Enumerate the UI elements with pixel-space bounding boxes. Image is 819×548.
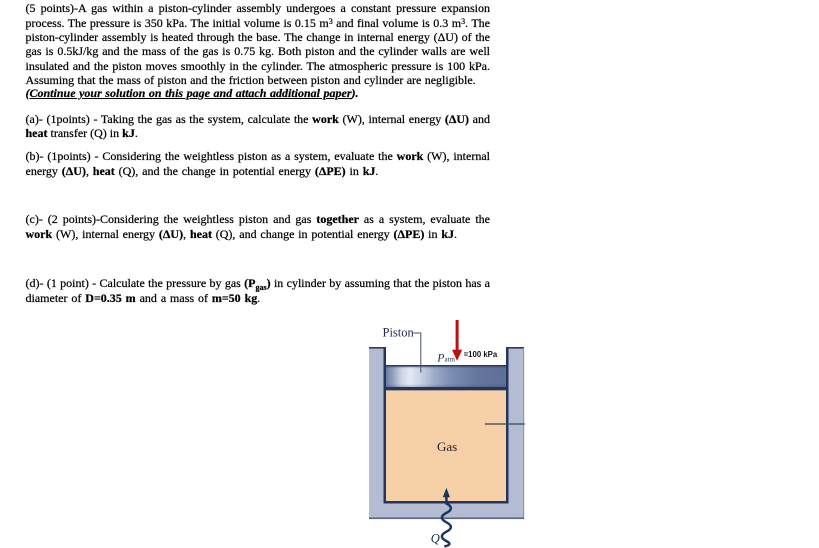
svg-text:Q: Q bbox=[431, 532, 440, 546]
svg-text:Piston: Piston bbox=[383, 326, 415, 340]
svg-text:Gas: Gas bbox=[437, 439, 457, 454]
svg-text:P: P bbox=[436, 350, 444, 364]
svg-text:atm: atm bbox=[445, 356, 456, 364]
svg-text:=100 kPa: =100 kPa bbox=[464, 350, 498, 359]
